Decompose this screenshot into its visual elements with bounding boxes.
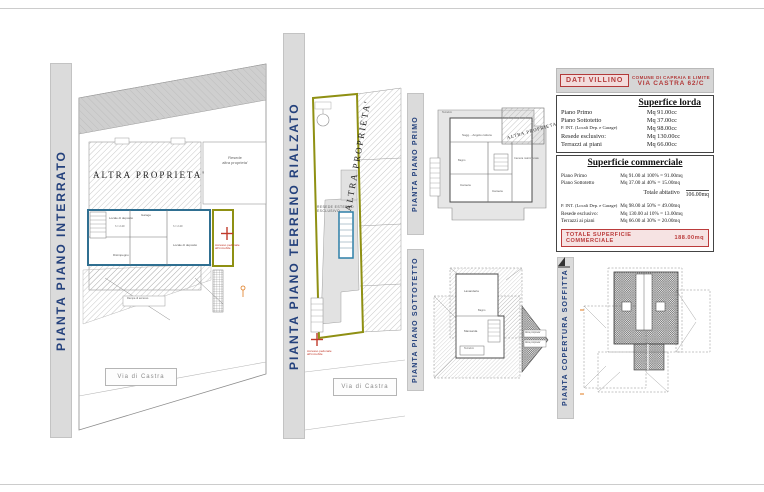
superficie-commerciale-table: Superficie commerciale Piano Primo Mq 91… (556, 155, 714, 252)
superfice-lorda-title: Superfice lorda (561, 98, 709, 108)
comune-line1: COMUNE DI CAPRAIA E LIMITE (632, 75, 710, 80)
resede-altra-box (203, 142, 266, 204)
drawing-sheet: PIANTA PIANO INTERRATO PIANTA PIANO TERR… (0, 0, 764, 492)
small-note-box (315, 102, 331, 109)
room-label: Bagno (458, 160, 466, 163)
driveway-area (83, 264, 211, 324)
hip-line (584, 306, 606, 328)
row-label: P. INT. (Locali Dep. e Garage) (561, 125, 647, 132)
hip-line (598, 372, 620, 392)
height-note: h = 2.40 (115, 226, 124, 229)
table-row: Piano Sottotetto Mq 37.00 al 40% = 15.00… (561, 180, 709, 186)
olive-boundary-box (213, 210, 233, 266)
superfice-lorda-table: Superfice lorda Piano Primo Mq 91.00cc P… (556, 95, 714, 153)
section-label-text: PIANTA PIANO TERRENO RIALZATO (287, 102, 301, 370)
person-figure-icon (241, 286, 245, 290)
hip-line (676, 290, 696, 320)
stair-bottom (311, 298, 323, 332)
boundary-tab (115, 138, 129, 144)
section-label-piano-interrato: PIANTA PIANO INTERRATO (50, 63, 72, 438)
resede-altra-label: Resede altra proprieta' (211, 156, 259, 165)
north-arrow-shape (558, 257, 565, 266)
skylight (622, 302, 631, 311)
via-di-castra-label: Via di Castra (105, 368, 177, 386)
plan-copertura-soffitta (578, 262, 714, 414)
section-label-piano-terreno: PIANTA PIANO TERRENO RIALZATO (283, 33, 305, 439)
hip-line (676, 322, 696, 352)
totale-commerciale-label: TOTALE SUPERFICIE COMMERCIALE (566, 232, 675, 244)
table-row: Piano Primo Mq 91.00cc (561, 109, 709, 116)
totale-abitativo-label: Totale abitativo (644, 190, 680, 198)
comune-line2: VIA CASTRA 62/C (632, 80, 710, 87)
row-label: Terrazzi ai piani (561, 141, 647, 148)
data-panel: DATI VILLINO COMUNE DI CAPRAIA E LIMITE … (556, 68, 714, 274)
section-label-copertura: PIANTA COPERTURA SOFFITTA (557, 257, 574, 419)
section-label-text: PIANTA PIANO INTERRATO (54, 150, 68, 351)
well-symbol (317, 114, 329, 126)
section-label-piano-sottotetto: PIANTA PIANO SOTTOTETTO (407, 249, 424, 391)
table-row: Resede esclusivo: Mq 130.00cc (561, 133, 709, 140)
table-row: Resede esclusivo: Mq 130.00 al 10% = 13.… (561, 211, 709, 217)
data-panel-header: DATI VILLINO COMUNE DI CAPRAIA E LIMITE … (556, 68, 714, 93)
stair (430, 158, 440, 196)
row-label: Piano Primo (561, 173, 620, 179)
table-row: Terrazzi ai piani Mq 66.00cc (561, 141, 709, 148)
room-label: Terrazzo (442, 112, 452, 115)
dati-villino-badge: DATI VILLINO (560, 74, 629, 87)
row-label: Resede esclusivo: (561, 211, 620, 217)
hip-line (584, 366, 606, 388)
section-label-piano-primo: PIANTA PIANO PRIMO (407, 93, 424, 235)
hip-line (646, 372, 668, 392)
row-value: Mq 91.00cc (647, 109, 709, 116)
skylight (656, 302, 665, 311)
row-value: Mq 98.00cc (647, 125, 709, 132)
plan-piano-primo-drawing (428, 96, 556, 244)
altra-proprieta-label: ALTRA PROPRIETA' (93, 170, 206, 180)
row-label: Terrazzi ai piani (561, 218, 620, 224)
accesso-line2: all'immobile (307, 353, 332, 356)
table-row: Terrazzi ai piani Mq 66.00 al 30% = 20.0… (561, 218, 709, 224)
totale-abitativo-value: 106.00mq (686, 190, 709, 198)
stair (488, 320, 500, 342)
room-label: Bagno (478, 310, 486, 313)
road-band-hatch (79, 64, 266, 134)
row-label: Piano Sottotetto (561, 117, 647, 124)
superficie-commerciale-title: Superficie commerciale (561, 158, 709, 168)
room-label: Camera matrimoniale (514, 158, 539, 161)
site-plan-terreno: RESEDE ESTERNO ESCLUSIVO ALTRA PROPRIETA… (305, 30, 405, 442)
room-label: Locale di deposito (109, 217, 133, 220)
table-row: Piano Sottotetto Mq 37.00cc (561, 117, 709, 124)
site-plan-interrato: ALTRA PROPRIETA' Resede altra proprieta'… (75, 56, 270, 441)
room-label: Lavanderia (464, 290, 479, 293)
room-label: Camera (492, 190, 503, 193)
road-edge-line (305, 416, 405, 430)
row-label: Piano Primo (561, 109, 647, 116)
sheet-bottom-border (0, 484, 764, 485)
table-row: Piano Primo Mq 91.00 al 100% = 91.00mq (561, 173, 709, 179)
row-value: Mq 91.00 al 100% = 91.00mq (620, 173, 709, 179)
room-label: Sogg. - Angolo cottura (462, 134, 492, 137)
accesso-note: Accesso pedonale all'immobile (215, 244, 240, 251)
boundary-tab (171, 138, 185, 144)
totale-commerciale-bar: TOTALE SUPERFICIE COMMERCIALE 188.00mq (561, 229, 709, 247)
stair-exterior (339, 212, 353, 258)
plan-piano-sottotetto: Lavanderia Mansarda Bagno Terrazzo Altra… (426, 258, 554, 406)
row-label: Piano Sottotetto (561, 180, 620, 186)
room-label: Disimpegno (113, 254, 129, 257)
room-label: Camera (460, 184, 471, 187)
room-label: Locale di deposito (173, 244, 197, 247)
falda-label: Altra proprieta' (525, 332, 540, 335)
row-value: Mq 66.00cc (647, 141, 709, 148)
room-label: Mansarda (464, 330, 477, 333)
row-value: Mq 66.00 al 30% = 20.00mq (620, 218, 709, 224)
row-value: Mq 130.00cc (647, 133, 709, 140)
via-text: Via di Castra (341, 384, 388, 390)
comune-address: COMUNE DI CAPRAIA E LIMITE VIA CASTRA 62… (632, 75, 710, 87)
section-label-text: PIANTA PIANO SOTTOTETTO (412, 257, 419, 383)
rampa-label: Rampa di accesso (127, 298, 148, 301)
roof-dark-gable (522, 306, 548, 372)
via-text: Via di Castra (117, 374, 164, 380)
plan-copertura-drawing (578, 262, 714, 414)
room-label: Garage (141, 214, 151, 217)
spacer (561, 168, 709, 171)
row-label: P. INT. (Locali Dep. e Garage) (561, 203, 620, 209)
row-label: Resede esclusivo: (561, 133, 647, 140)
totale-abitativo-row: Totale abitativo 106.00mq (561, 190, 709, 198)
row-value: Mq 37.00 al 40% = 15.00mq (620, 180, 709, 186)
roof-dashed-outline (676, 290, 710, 352)
accesso-note: Accesso pedonale all'immobile (307, 350, 332, 357)
hatched-strip (213, 270, 223, 312)
row-value: Mq 98.00 al 50% = 49.00mq (620, 203, 709, 209)
falda-label: Altra proprieta' (525, 342, 540, 345)
sheet-top-border (0, 8, 764, 9)
plan-piano-primo: Terrazzo Sogg. - Angolo cottura Camera C… (428, 96, 556, 244)
road-edge-line (305, 360, 405, 372)
table-row: P. INT. (Locali Dep. e Garage) Mq 98.00 … (561, 203, 709, 209)
room-label: Terrazzo (464, 348, 474, 351)
table-row: P. INT. (Locali Dep. e Garage) Mq 98.00c… (561, 125, 709, 132)
totale-commerciale-value: 188.00mq (675, 235, 705, 241)
height-note: h = 2.40 (173, 226, 182, 229)
north-arrow-icon (556, 255, 572, 269)
section-label-text: PIANTA PIANO PRIMO (412, 116, 419, 212)
via-di-castra-label: Via di Castra (333, 378, 397, 396)
row-value: Mq 130.00 al 10% = 13.00mq (620, 211, 709, 217)
section-label-text: PIANTA COPERTURA SOFFITTA (562, 270, 569, 407)
interrato-building-outline (88, 210, 210, 265)
resede-altra-line2: altra proprieta' (211, 161, 259, 166)
roof-annex (634, 344, 664, 370)
accesso-line2: all'immobile (215, 247, 240, 250)
row-value: Mq 37.00cc (647, 117, 709, 124)
